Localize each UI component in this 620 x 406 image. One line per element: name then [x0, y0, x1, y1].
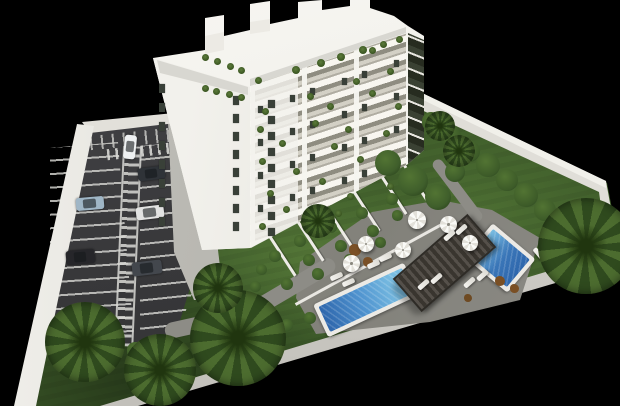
- garden-bush: [294, 235, 306, 247]
- architectural-render-scene: [0, 0, 620, 406]
- facade-window: [342, 111, 347, 118]
- balcony-plant: [359, 46, 367, 54]
- balcony-plant: [255, 77, 262, 84]
- facade-window: [159, 217, 165, 226]
- garden-bush: [356, 207, 368, 219]
- parasol: [462, 235, 478, 251]
- facade-window: [268, 228, 275, 236]
- balcony-plant: [202, 85, 209, 92]
- balcony-plant: [337, 53, 345, 61]
- facade-window: [258, 205, 263, 212]
- balcony-plant: [387, 183, 394, 190]
- balcony-plant: [387, 68, 394, 75]
- garden-bush: [303, 254, 315, 266]
- facade-window: [268, 196, 275, 204]
- garden-tree: [375, 150, 401, 176]
- balcony-plant: [317, 59, 325, 67]
- car: [123, 134, 137, 159]
- facade-window: [159, 179, 165, 188]
- facade-window: [233, 204, 239, 213]
- facade-window: [233, 186, 239, 195]
- garden-bush: [269, 250, 281, 262]
- balcony-plant: [238, 94, 245, 101]
- balcony-plant: [353, 78, 360, 85]
- balcony-plant: [226, 91, 233, 98]
- facade-window: [159, 84, 165, 93]
- garden-bush: [312, 268, 324, 280]
- palm-tree: [124, 334, 196, 406]
- garden-bush: [256, 264, 267, 275]
- balcony-plant: [395, 103, 402, 110]
- facade-window: [233, 132, 239, 141]
- facade-window: [268, 132, 275, 140]
- facade-window: [362, 170, 367, 177]
- facade-window: [268, 100, 275, 108]
- balcony-plant: [279, 140, 286, 147]
- facade-window: [159, 122, 165, 131]
- facade-window: [233, 222, 239, 231]
- facade-window: [159, 198, 165, 207]
- facade-window: [362, 71, 367, 78]
- facade-window: [268, 164, 275, 172]
- balcony-plant: [259, 158, 266, 165]
- balcony-plant: [357, 156, 364, 163]
- parasol: [408, 211, 426, 229]
- balcony-plant: [347, 193, 354, 200]
- balcony-plant: [257, 126, 264, 133]
- garden-bush: [510, 284, 519, 293]
- balcony-plant: [213, 88, 220, 95]
- balcony-plant: [327, 103, 334, 110]
- balcony-plant: [331, 143, 338, 150]
- garden-bush: [375, 237, 386, 248]
- garden-tree: [398, 166, 428, 196]
- garden-bush: [392, 210, 403, 221]
- facade-window: [159, 141, 165, 150]
- facade-window: [342, 78, 347, 85]
- balcony-plant: [293, 168, 300, 175]
- balcony-plant: [312, 120, 319, 127]
- balcony-plant: [259, 223, 266, 230]
- facade-window: [394, 60, 399, 67]
- garden-bush: [386, 193, 398, 205]
- balcony-plant: [396, 36, 403, 43]
- facade-window: [268, 180, 275, 188]
- car: [75, 196, 104, 211]
- garden-tree: [425, 184, 451, 210]
- garden-bush: [304, 312, 316, 324]
- balcony-plant: [345, 126, 352, 133]
- parasol: [358, 236, 374, 252]
- facade-window: [258, 172, 263, 179]
- facade-window: [290, 128, 295, 135]
- facade-window: [233, 150, 239, 159]
- facade-window: [342, 177, 347, 184]
- balcony-plant: [202, 54, 209, 61]
- facade-window: [159, 160, 165, 169]
- facade-window: [310, 187, 315, 194]
- facade-window: [268, 148, 275, 156]
- balcony-plant: [214, 58, 221, 65]
- garden-bush: [495, 276, 505, 286]
- parasol: [343, 255, 360, 272]
- facade-window: [258, 139, 263, 146]
- balcony-plant: [319, 178, 326, 185]
- facade-window: [342, 144, 347, 151]
- facade-window: [233, 168, 239, 177]
- facade-window: [290, 194, 295, 201]
- facade-window: [394, 126, 399, 133]
- balcony-plant: [292, 66, 300, 74]
- garden-bush: [464, 294, 472, 302]
- facade-window: [362, 137, 367, 144]
- balcony-plant: [262, 108, 269, 115]
- balcony-plant: [283, 206, 290, 213]
- garden-bush: [281, 278, 293, 290]
- balcony-plant: [369, 47, 376, 54]
- balcony-plant: [267, 190, 274, 197]
- balcony-plant: [383, 130, 390, 137]
- car: [65, 249, 95, 265]
- garden-bush: [250, 281, 261, 292]
- garden-bush: [367, 225, 379, 237]
- garden-bush: [335, 240, 347, 252]
- parasol: [395, 242, 411, 258]
- balcony-plant: [307, 93, 314, 100]
- balcony-plant: [380, 41, 387, 48]
- facade-window: [268, 212, 275, 220]
- balcony-plant: [335, 210, 342, 217]
- balcony-plant: [238, 67, 245, 74]
- balcony-plant: [369, 90, 376, 97]
- balcony-plant: [227, 63, 234, 70]
- palm-tree: [301, 204, 335, 238]
- facade-window: [159, 103, 165, 112]
- facade-window: [310, 154, 315, 161]
- facade-window: [394, 93, 399, 100]
- palm-tree: [193, 263, 243, 313]
- facade-window: [362, 104, 367, 111]
- palm-tree: [443, 135, 475, 167]
- facade-window: [233, 114, 239, 123]
- facade-window: [290, 161, 295, 168]
- palm-tree: [45, 302, 125, 382]
- facade-window: [268, 116, 275, 124]
- facade-window: [290, 95, 295, 102]
